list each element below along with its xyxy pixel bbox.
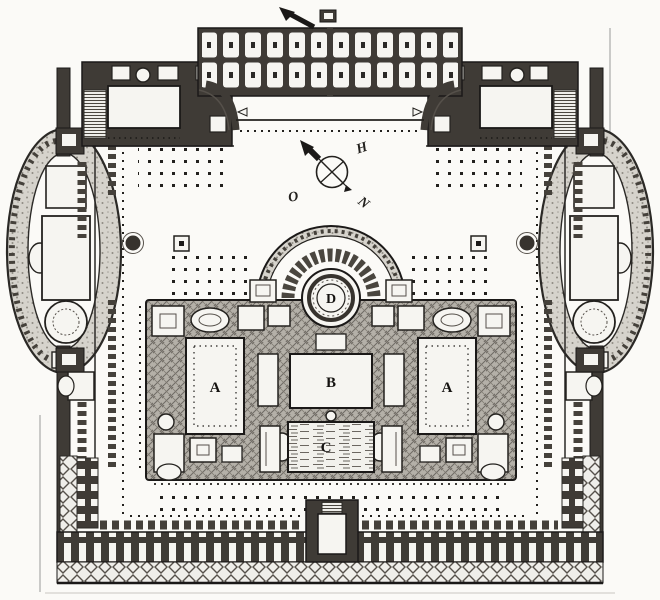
corner-cells [77, 458, 98, 528]
corner-cells [562, 458, 583, 528]
corner-cells [583, 456, 600, 532]
bath-plan-svg: H O N D [0, 0, 660, 600]
vestibule-hall [108, 86, 180, 128]
garden-grid [428, 142, 522, 196]
garden-grid [138, 142, 232, 196]
hall-a-left: A [186, 338, 244, 434]
exedra-right [539, 129, 653, 373]
compass-letter-h: H [353, 140, 370, 158]
label-rotunda-d: D [326, 292, 336, 307]
compass-letter-n: N [354, 194, 373, 213]
central-projection [306, 500, 358, 562]
entrance-arrow-icon [279, 7, 336, 27]
garden-grid [404, 256, 490, 298]
north-arrow-icon [300, 140, 319, 159]
label-hall-a-left: A [210, 380, 221, 396]
engraved-bath-plan: H O N D [0, 0, 660, 600]
cistern-block-top [198, 7, 462, 130]
vestibule-hall [480, 86, 552, 128]
seating-row [57, 562, 603, 583]
compass-rose: H O N [287, 140, 372, 213]
exedra-rotunda [45, 301, 87, 343]
exedra-rotunda [573, 301, 615, 343]
label-hall-a-right: A [442, 380, 453, 396]
fountain-basin [520, 236, 535, 251]
pool-c: C [272, 422, 390, 472]
fountain-basin [126, 236, 141, 251]
hall-a-right: A [418, 338, 476, 434]
label-hall-b: B [326, 375, 336, 391]
corner-cells [60, 456, 77, 532]
compass-letter-o: O [287, 189, 300, 206]
stairs [554, 90, 576, 138]
exedra-left [7, 129, 121, 373]
garden-grid [170, 256, 256, 298]
rotunda-d: D [302, 269, 360, 327]
stairs [84, 90, 106, 138]
label-pool-c: C [321, 440, 332, 456]
